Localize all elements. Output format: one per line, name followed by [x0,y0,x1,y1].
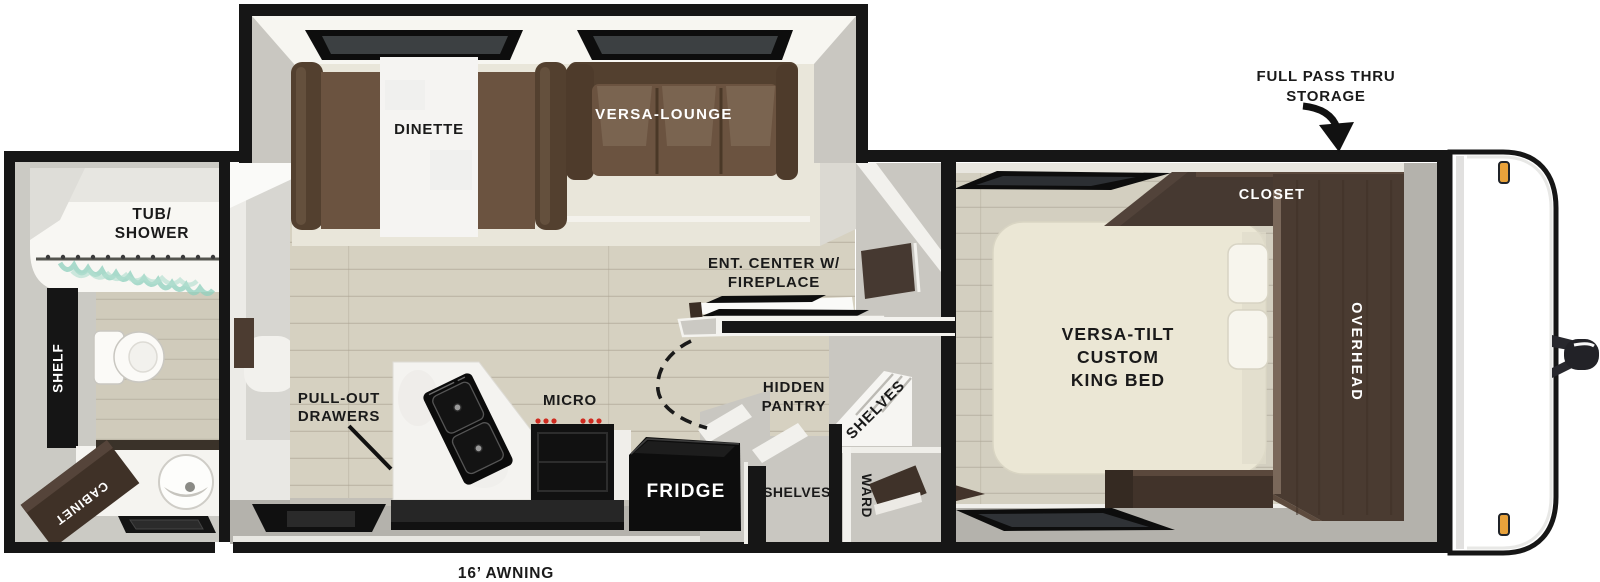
svg-text:MICRO: MICRO [543,392,597,409]
svg-text:FIREPLACE: FIREPLACE [728,274,820,291]
svg-text:VERSA-LOUNGE: VERSA-LOUNGE [595,106,733,123]
svg-text:VERSA-TILT: VERSA-TILT [1062,324,1175,344]
svg-text:PANTRY: PANTRY [762,398,827,415]
svg-text:ENT. CENTER W/: ENT. CENTER W/ [708,255,840,272]
svg-text:HIDDEN: HIDDEN [763,379,825,396]
svg-text:TUB/: TUB/ [132,206,171,223]
svg-text:CLOSET: CLOSET [1239,187,1306,203]
svg-text:SHOWER: SHOWER [115,225,190,242]
svg-text:KING BED: KING BED [1071,370,1165,390]
svg-text:16’ AWNING: 16’ AWNING [458,565,554,582]
svg-text:DINETTE: DINETTE [394,121,464,138]
svg-text:WARD: WARD [859,474,874,518]
svg-text:DRAWERS: DRAWERS [298,408,380,425]
svg-text:SHELVES: SHELVES [763,484,831,500]
svg-text:SHELF: SHELF [51,343,66,393]
svg-text:STORAGE: STORAGE [1286,88,1366,105]
svg-text:PULL-OUT: PULL-OUT [298,390,380,407]
svg-text:FRIDGE: FRIDGE [647,481,726,502]
svg-text:CUSTOM: CUSTOM [1077,347,1159,367]
svg-text:OVERHEAD: OVERHEAD [1348,302,1364,402]
svg-text:FULL PASS THRU: FULL PASS THRU [1257,68,1396,85]
